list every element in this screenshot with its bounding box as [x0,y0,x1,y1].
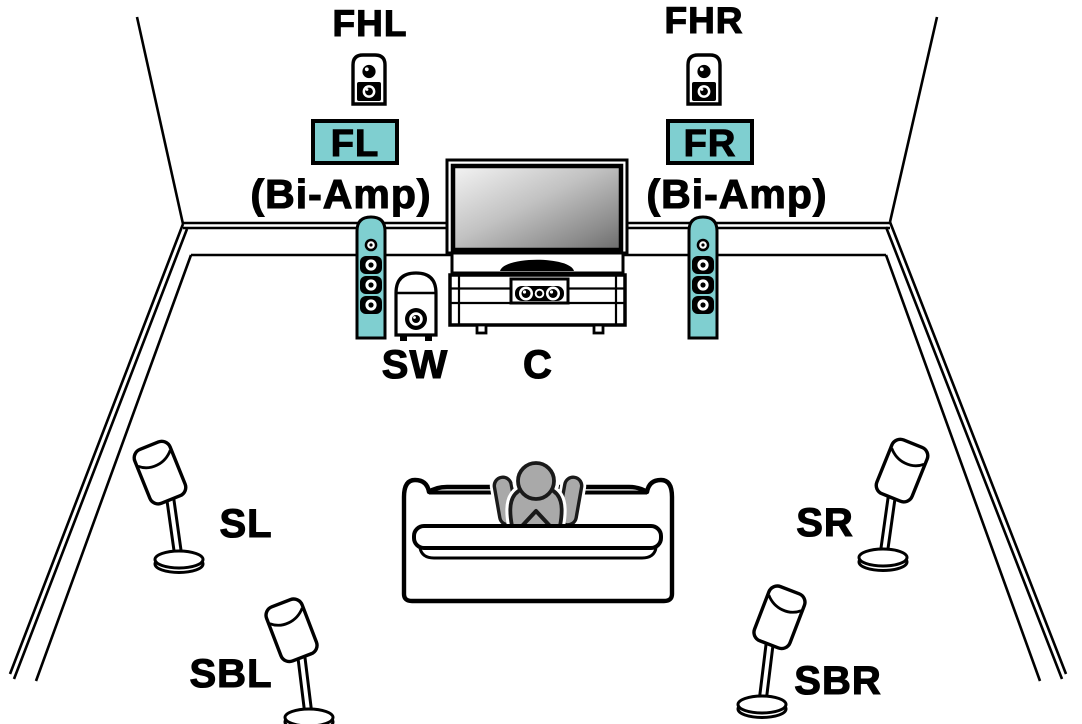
label-center: C [523,343,553,387]
sofa-seat-cushion [414,526,661,548]
surround-back-left-speaker-icon [262,595,333,724]
tv-icon [447,160,627,273]
label-surround-back-left: SBL [190,652,273,696]
speaker-layout-diagram: FL FR FHL FHR (Bi-Amp) (Bi-Amp) SW C SL … [0,0,1082,724]
listener-icon [493,463,583,526]
label-surround-right: SR [796,501,854,545]
label-front-height-right: FHR [664,0,743,41]
label-bi-amp-right: (Bi-Amp) [646,171,827,217]
label-subwoofer: SW [382,343,448,387]
front-left-tower-speaker-icon [357,217,385,338]
front-height-left-speaker-icon [353,55,385,104]
listener-head [518,463,554,499]
tv-rack-icon [450,275,625,333]
label-front-right: FR [684,123,737,165]
sofa-icon [404,463,672,601]
label-surround-left: SL [219,502,272,546]
tv-screen [453,166,621,250]
surround-left-speaker-icon [130,437,203,573]
label-surround-back-right: SBR [794,659,881,703]
ceiling-edge-right [890,17,937,222]
front-right-tower-speaker-icon [689,217,717,338]
center-speaker-icon [511,279,568,303]
rack-foot-left [477,325,486,333]
label-front-height-left: FHL [333,3,408,44]
front-left-label-box: FL [313,121,397,165]
label-front-left: FL [331,123,379,165]
subwoofer-icon [396,273,436,341]
front-right-label-box: FR [668,121,752,165]
rack-foot-right [594,325,603,333]
label-bi-amp-left: (Bi-Amp) [250,171,431,217]
ceiling-edge-left [137,17,183,224]
surround-right-speaker-icon [859,435,932,571]
front-height-right-speaker-icon [688,55,720,104]
